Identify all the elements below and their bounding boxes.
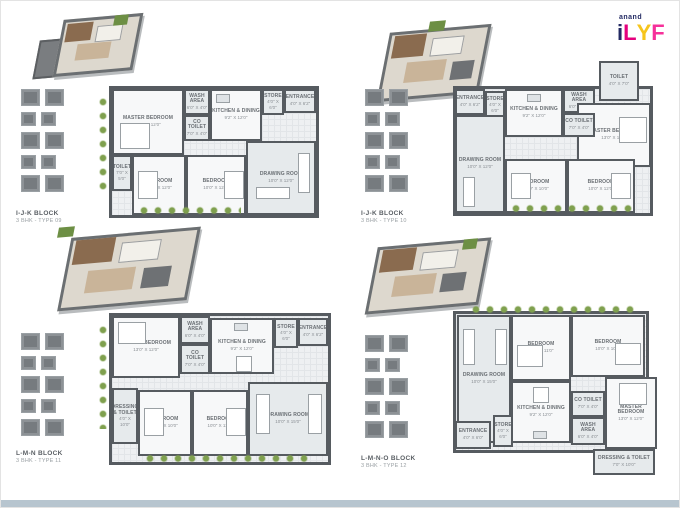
render-garden-patch [462,238,478,249]
plan-label-3: L-M-N BLOCK 3 BHK - TYPE 11 [16,450,63,465]
room-size-label: 4'0" X 6'0" [487,102,503,113]
garden-strip [143,453,311,464]
page-footer-bar [1,500,680,507]
room-name-label: DRESSING & TOILET [112,405,138,417]
sofa-icon [308,394,322,434]
keyplan-ijk [21,89,64,198]
unit-type: 3 BHK - TYPE 12 [361,463,415,470]
room-co-toilet: CO TOILET 7'0" X 4'0" [571,391,605,417]
render-room-patch [74,41,111,60]
room-wash-area: WASH AREA 6'0" X 4'0" [180,316,210,344]
room-entrance: ENTRANCE 4'0" X 6'2" [284,89,316,113]
room-drawing-room: DRAWING ROOM 10'0" X 12'0" [246,141,316,215]
room-size-label: 4'0" X 6'0" [495,428,511,439]
room-co-toilet: CO TOILET 7'0" X 4'0" [563,113,595,137]
keyplan-ijk-2 [365,89,408,198]
room-drawing-room: DRAWING ROOM 10'0" X 12'0" [455,115,505,213]
room-store: STORE 4'0" X 6'0" [274,318,298,348]
bed-icon [144,408,164,436]
room-size-label: 7'0" X 4'0" [578,404,598,409]
render-floor-patch [72,237,117,265]
render-floor-patch [64,22,93,43]
room-size-label: 4'0" X 6'2" [290,101,310,106]
room-size-label: 4'0" X 6'2" [460,102,480,107]
plan-label-4: L-M-N-O BLOCK 3 BHK - TYPE 12 [361,455,415,470]
garden-strip [137,205,241,216]
render-garden-patch [113,14,129,25]
room-wash-area: WASH AREA 6'0" X 4'0" [184,89,210,115]
room-size-label: 9'2" X 12'0" [231,346,254,351]
brochure-page: anand iLYF I-J-K BLOCK 3 BHK - TYPE 09 M… [0,0,680,508]
room-dressing-toilet: DRESSING & TOILET 4'0" X 10'0" [112,388,138,444]
stove-icon [533,431,547,439]
room-master-bedroom: MASTER BEDROOM 13'0" X 12'0" [112,89,184,155]
plan-label-2: I-J-K BLOCK 3 BHK - TYPE 10 [361,210,407,225]
room-bedroom-2: BEDROOM 10'0" X 10'0" [571,315,645,377]
room-size-label: 7'0" X 10'0" [613,462,636,467]
room-co-toilet: CO TOILET 7'0" X 4'0" [184,115,210,141]
sofa-icon [256,394,270,434]
room-size-label: 10'0" X 12'0" [268,178,293,183]
room-dressing-toilet: DRESSING & TOILET 7'0" X 10'0" [593,449,655,475]
room-kitchen-dining: KITCHEN & DINING 9'2" X 12'0" [210,318,274,374]
room-master-bedroom: MASTER BEDROOM 13'0" X 12'0" [112,316,180,378]
room-size-label: 10'0" X 15'0" [471,379,496,384]
room-drawing-room: DRAWING ROOM 10'0" X 15'0" [248,382,328,456]
room-size-label: 9'2" X 12'0" [523,113,546,118]
bed-icon [118,322,146,344]
room-bedroom-2: BEDROOM 10'0" X 11'0" [192,390,248,456]
sofa-icon [256,187,290,199]
room-entrance: ENTRANCE 4'0" X 6'0" [455,421,491,449]
render-room-patch [94,24,123,43]
room-name-label: WASH AREA [182,322,208,334]
sofa-icon [463,329,475,365]
room-size-label: 4'0" X 6'0" [264,99,282,110]
bed-icon [517,345,543,367]
garden-strip [469,304,637,315]
room-size-label: 4'0" X 6'0" [463,435,483,440]
room-size-label: 4'0" X 6'0" [276,330,296,341]
room-toilet: TOILET 4'0" X 7'0" [599,61,639,101]
room-kitchen-dining: KITCHEN & DINING 9'2" X 12'0" [505,89,563,137]
room-size-label: 7'0" X 4'0" [187,131,207,136]
room-name-label: CO TOILET [186,120,208,132]
stove-icon [216,94,230,103]
render-room-patch [419,249,458,271]
room-co-toilet: CO TOILET 7'0" X 4'0" [180,344,210,374]
block-name: L-M-N-O BLOCK [361,455,415,463]
dining-table-icon [236,356,252,372]
room-size-label: 6'0" X 4'0" [578,434,598,439]
room-bedroom-1: BEDROOM 10'0" X 10'0" [138,390,192,456]
room-size-label: 7'0" X 5'0" [114,170,130,181]
render-room-patch [391,273,437,297]
render-room-patch [118,239,162,263]
room-size-label: 13'0" X 12'0" [133,347,158,352]
render-garden-patch [57,226,75,238]
room-size-label: 10'0" X 12'0" [588,186,613,191]
room-size-label: 7'0" X 4'0" [185,362,205,367]
floorplan-type-12: DRAWING ROOM 10'0" X 15'0" BEDROOM 10'0"… [453,301,661,477]
room-kitchen-dining: KITCHEN & DINING 9'2" X 12'0" [210,89,262,141]
room-size-label: 9'2" X 12'0" [225,115,248,120]
room-size-label: 4'0" X 10'0" [114,416,136,427]
plan-label-1: I-J-K BLOCK 3 BHK - TYPE 09 [16,210,62,225]
garden-strip [97,95,109,195]
room-toilet: TOILET 7'0" X 5'0" [112,155,132,191]
bed-icon [619,383,647,405]
block-name: I-J-K BLOCK [361,210,407,218]
garden-strip [509,203,633,214]
unit-type: 3 BHK - TYPE 10 [361,218,407,225]
room-size-label: 10'0" X 12'0" [467,164,492,169]
room-size-label: 4'0" X 7'0" [609,81,629,86]
render-room-patch [140,266,172,289]
floorplan-type-09: MASTER BEDROOM 13'0" X 12'0" WASH AREA 6… [109,86,319,218]
render-room-patch [403,59,447,83]
room-size-label: 7'0" X 4'0" [569,125,589,130]
room-size-label: 6'0" X 4'0" [185,333,205,338]
anand-ilyf-logo: anand iLYF [617,14,669,44]
bed-icon [138,171,158,199]
bed-icon [615,343,641,365]
floorplan-type-10: TOILET 4'0" X 7'0" ENTRANCE 4'0" X 6'2" … [453,61,655,216]
render-room-patch [439,272,466,292]
logo-name-text: iLYF [617,20,665,45]
bed-icon [511,173,531,199]
block-name: L-M-N BLOCK [16,450,63,458]
room-size-label: 10'0" X 15'0" [275,419,300,424]
room-entrance: ENTRANCE 4'0" X 6'2" [298,318,328,346]
room-master-bedroom: MASTER BEDROOM 13'0" X 12'0" [605,377,657,449]
floorplan-3d-render [36,13,138,77]
room-store: STORE 4'0" X 6'0" [493,415,513,447]
room-wash-area: WASH AREA 6'0" X 4'0" [571,417,605,445]
stove-icon [527,94,541,102]
render-room-patch [84,267,136,294]
sofa-icon [463,177,475,207]
bed-icon [120,123,150,149]
render-floor-patch [391,33,427,58]
room-size-label: 6'0" X 4'0" [187,105,207,110]
room-name-label: WASH AREA [186,94,208,106]
sofa-icon [495,329,507,365]
floorplan-3d-render [56,225,204,311]
room-store: STORE 4'0" X 6'0" [262,89,284,115]
room-kitchen-dining: KITCHEN & DINING 9'2" X 12'0" [511,381,571,443]
bed-icon [611,173,631,199]
room-name-label: WASH AREA [573,423,603,435]
room-size-label: 9'2" X 12'0" [530,412,553,417]
keyplan-lmn [21,333,64,442]
logo-letter-f: F [651,22,664,44]
bed-icon [224,171,244,199]
dining-table-icon [533,387,549,403]
floorplan-type-11: MASTER BEDROOM 13'0" X 12'0" WASH AREA 6… [109,313,331,465]
render-room-patch [429,35,464,56]
room-entrance: ENTRANCE 4'0" X 6'2" [455,89,485,115]
stove-icon [234,323,248,331]
render-floor-patch [379,247,417,272]
room-name-label: MASTER BEDROOM [607,405,655,417]
block-name: I-J-K BLOCK [16,210,62,218]
room-name-label: CO TOILET [182,351,208,363]
logo-letter-y: Y [637,22,652,44]
keyplan-lmno [365,335,408,444]
room-bedroom-1: BEDROOM 10'0" X 11'0" [511,315,571,381]
logo-letter-l: L [623,22,636,44]
garden-strip [97,323,109,429]
room-size-label: 13'0" X 12'0" [618,416,643,421]
unit-type: 3 BHK - TYPE 09 [16,218,62,225]
unit-type: 3 BHK - TYPE 11 [16,458,63,465]
bed-icon [226,408,246,436]
render-garden-patch [428,20,446,32]
sofa-icon [298,153,310,193]
room-size-label: 4'0" X 6'2" [303,332,323,337]
bed-icon [619,117,647,143]
